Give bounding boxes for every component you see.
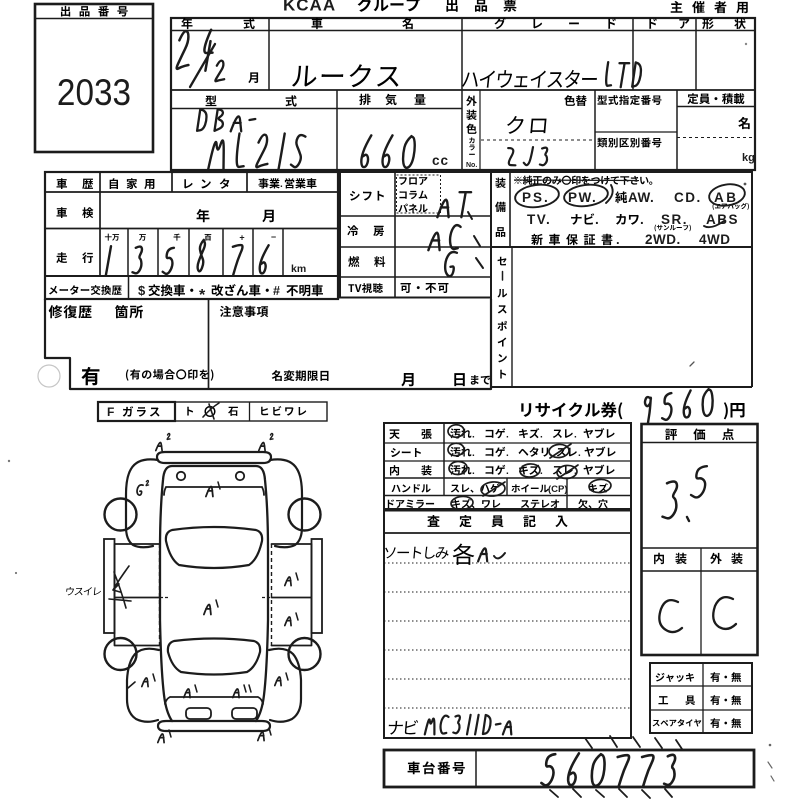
svg-text:ABS: ABS: [706, 212, 739, 227]
svg-text:.: .: [472, 430, 475, 441]
svg-text:PW.: PW.: [568, 190, 597, 205]
svg-text:.: .: [574, 430, 577, 441]
svg-text:.: .: [595, 212, 599, 227]
svg-text:SR.: SR.: [661, 212, 688, 227]
svg-text:2033: 2033: [57, 72, 131, 113]
svg-text:AW.: AW.: [628, 190, 654, 205]
svg-text:.: .: [578, 448, 581, 459]
svg-text:.: .: [616, 232, 620, 247]
svg-text:*: *: [199, 287, 206, 304]
svg-text:.: .: [640, 212, 644, 227]
svg-text:$: $: [138, 283, 146, 298]
svg-text:−: −: [271, 232, 276, 242]
svg-text:PS.: PS.: [522, 190, 550, 205]
svg-text:#: #: [273, 284, 280, 298]
svg-text:TV.: TV.: [527, 212, 551, 227]
svg-text:.: .: [506, 448, 509, 459]
svg-text:km: km: [291, 263, 306, 275]
svg-text:.: .: [472, 466, 475, 477]
svg-text:No.: No.: [466, 162, 477, 169]
svg-text:.: .: [506, 430, 509, 441]
svg-text:+: +: [239, 233, 244, 243]
svg-text:.: .: [280, 179, 283, 190]
svg-text:.: .: [540, 430, 543, 441]
svg-text:(CP): (CP): [548, 484, 568, 495]
svg-text:F: F: [107, 405, 114, 419]
svg-text:2WD.: 2WD.: [645, 232, 681, 247]
svg-text:.: .: [506, 466, 509, 477]
svg-text:4WD: 4WD: [699, 232, 731, 247]
svg-text:kg: kg: [742, 152, 755, 164]
svg-text:cc: cc: [432, 153, 449, 168]
svg-text:.: .: [472, 448, 475, 459]
svg-text:CD.: CD.: [674, 190, 702, 205]
svg-text:KCAA: KCAA: [283, 0, 336, 15]
